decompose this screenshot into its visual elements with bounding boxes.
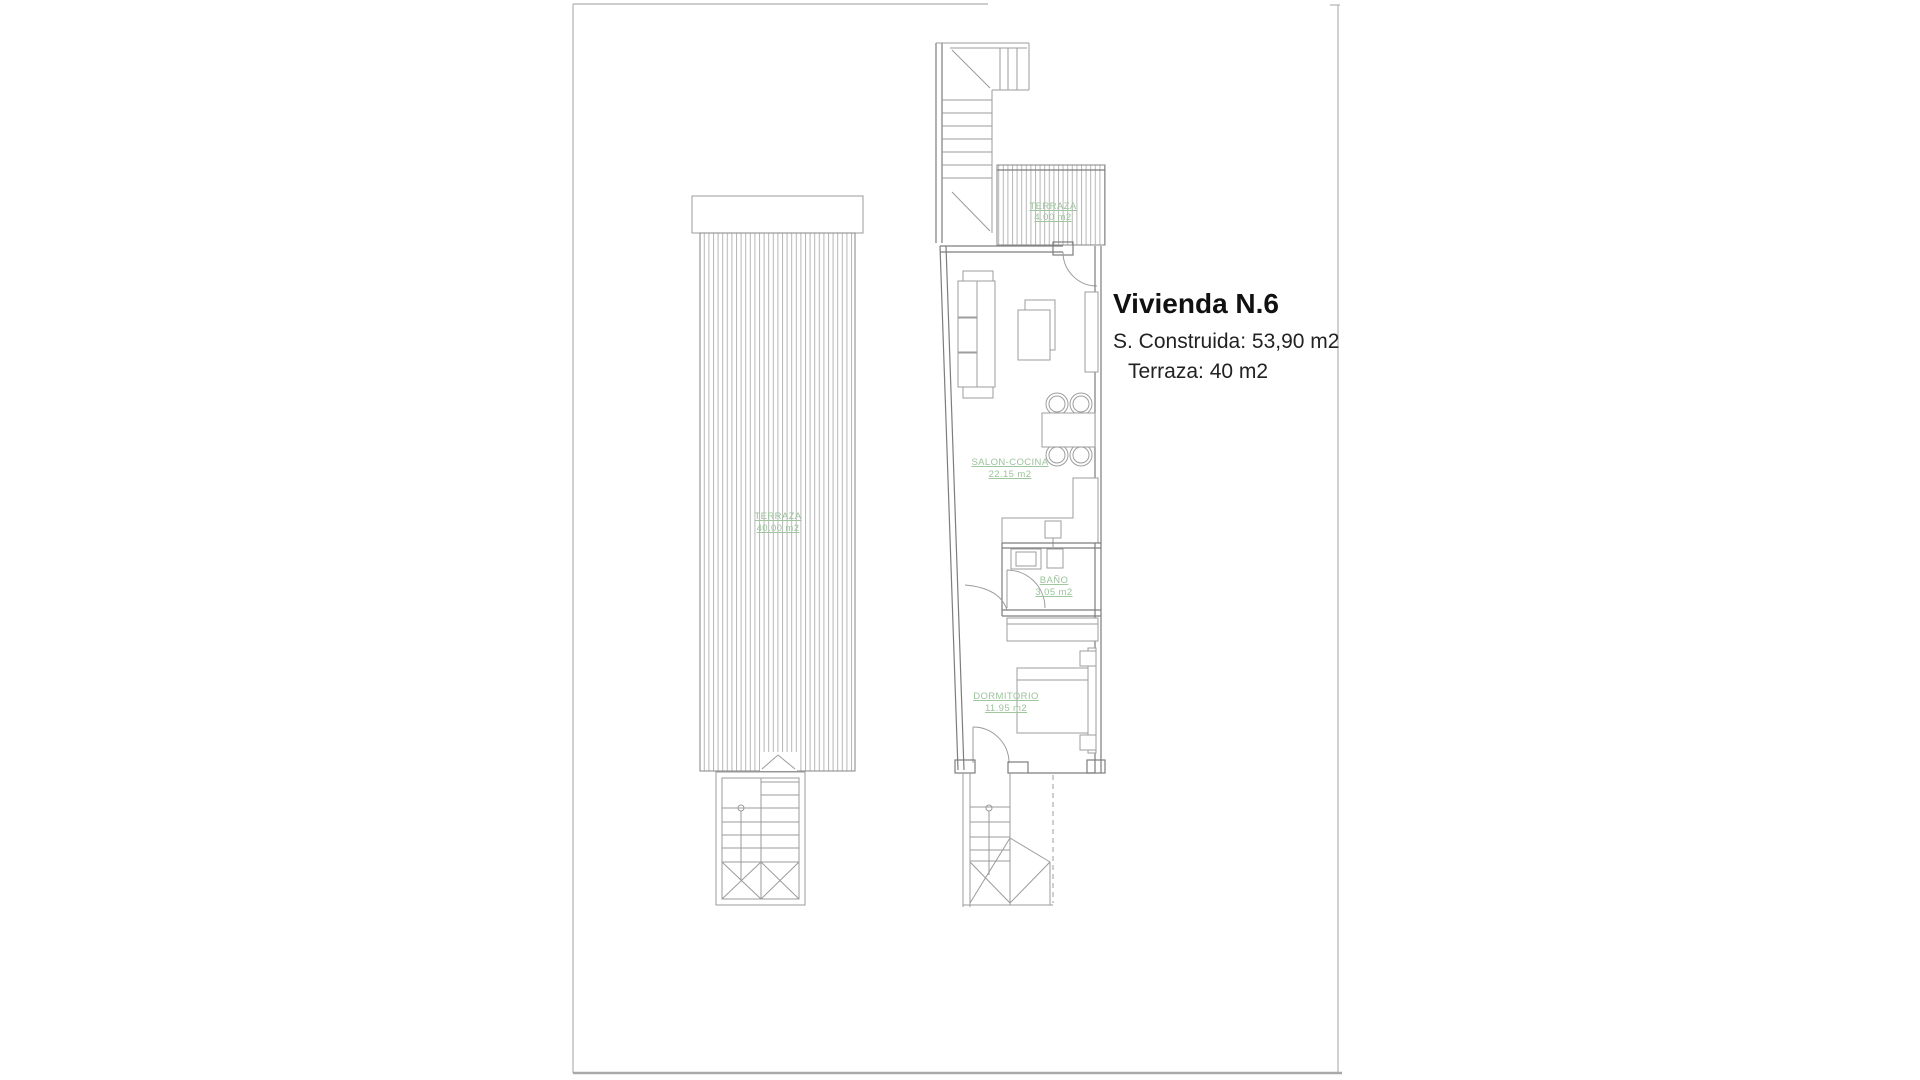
bathroom: BAÑO 3.05 m2: [965, 543, 1101, 616]
coffee-table: [1018, 300, 1055, 360]
unit-title: Vivienda N.6: [1113, 288, 1339, 320]
built-surface-text: S. Construida: 53,90 m2: [1113, 330, 1339, 354]
tv-cabinet: [1085, 292, 1098, 372]
sheet-border: [573, 4, 1342, 1073]
washbasin: [1011, 549, 1041, 569]
dormitorio-label: DORMITORIO: [973, 691, 1039, 702]
terraza-area-value: 4.00 m2: [1034, 212, 1071, 223]
salon-area: 22.15 m2: [989, 469, 1032, 480]
title-block: Vivienda N.6 S. Construida: 53,90 m2 Ter…: [1113, 288, 1339, 384]
terrace-surface-text: Terraza: 40 m2: [1128, 360, 1339, 384]
solarium-label: TERRAZA: [754, 511, 801, 522]
bano-label: BAÑO: [1040, 575, 1069, 586]
toilet: [1047, 549, 1063, 568]
plan-sheet: TERRAZA 40.00 m2: [0, 0, 1920, 1080]
floor-plan-canvas: TERRAZA 40.00 m2: [0, 0, 1920, 1080]
vivienda-plan: TERRAZA 4.00 m2: [936, 43, 1105, 907]
entry-door-arc: [1063, 252, 1097, 286]
solarium-plan: TERRAZA 40.00 m2: [692, 196, 863, 905]
terraza-area: TERRAZA 4.00 m2: [997, 165, 1105, 245]
bano-area: 3.05 m2: [1035, 587, 1072, 598]
bedroom: DORMITORIO 11.95 m2: [955, 618, 1105, 773]
bedroom-door-arc: [973, 727, 1009, 763]
salon-label: SALON-COCINA: [971, 457, 1048, 468]
salon-furniture: [958, 271, 1098, 547]
solarium-top-band: [692, 196, 863, 233]
hall-door-arc: [965, 585, 1007, 610]
dining-set: [1042, 393, 1095, 466]
wardrobe: [1007, 618, 1098, 641]
terraza-label: TERRAZA: [1029, 201, 1076, 212]
solarium-area: 40.00 m2: [757, 523, 800, 534]
solarium-staircase: [716, 772, 805, 905]
dining-table: [1042, 413, 1095, 447]
dormitorio-area: 11.95 m2: [985, 703, 1027, 714]
solarium-hatched-area: [700, 233, 855, 771]
vivienda-staircase: [963, 773, 1053, 907]
sofa: [958, 271, 995, 398]
stair-post-icon: [986, 805, 992, 811]
